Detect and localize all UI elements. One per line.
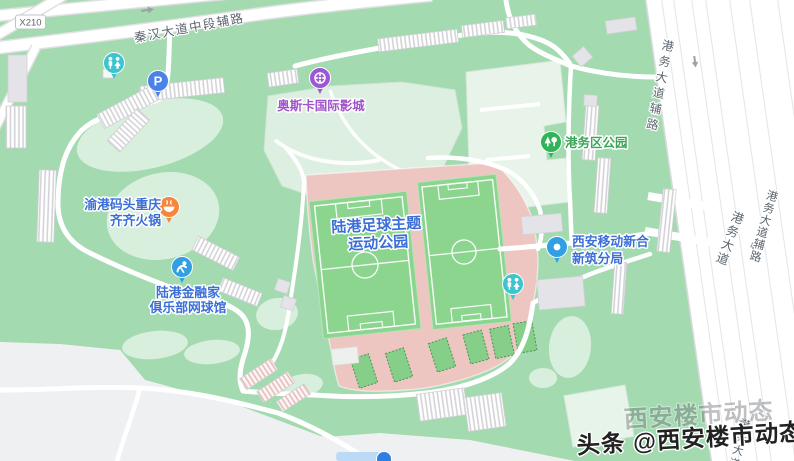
mobile-branch-label-line2: 新筑分局 (572, 251, 623, 266)
route-badge-text: X210 (19, 18, 41, 29)
route-badge: X210 (16, 15, 46, 29)
hotpot-label-line1: 渝港码头重庆 (84, 197, 161, 212)
tennis-club-label-line2: 俱乐部网球馆 (149, 300, 227, 315)
hotpot-label-line2: 齐齐火锅 (110, 213, 161, 228)
football-sports-complex (306, 163, 538, 391)
bottom-edge-feature (336, 452, 392, 461)
tennis-club-label-line1: 陆港金融家 (156, 285, 220, 300)
map-viewport: X210 秦汉大道中段辅路 港务大道辅路 港务大道 港务大道辅路 港务大道 陆港… (0, 0, 794, 461)
district-park-label: 港务区公园 (565, 135, 628, 150)
map-canvas[interactable]: X210 秦汉大道中段辅路 港务大道辅路 港务大道 港务大道辅路 港务大道 陆港… (0, 0, 794, 461)
mobile-branch-label-line1: 西安移动新合 (572, 234, 649, 249)
football-field-right (417, 174, 511, 329)
svg-text:运动公园: 运动公园 (348, 232, 409, 253)
cinema-label: 奥斯卡国际影城 (277, 98, 365, 113)
parking-letter: P (154, 74, 163, 89)
stadium-notch-building (331, 347, 359, 366)
football-field-left (309, 191, 421, 338)
